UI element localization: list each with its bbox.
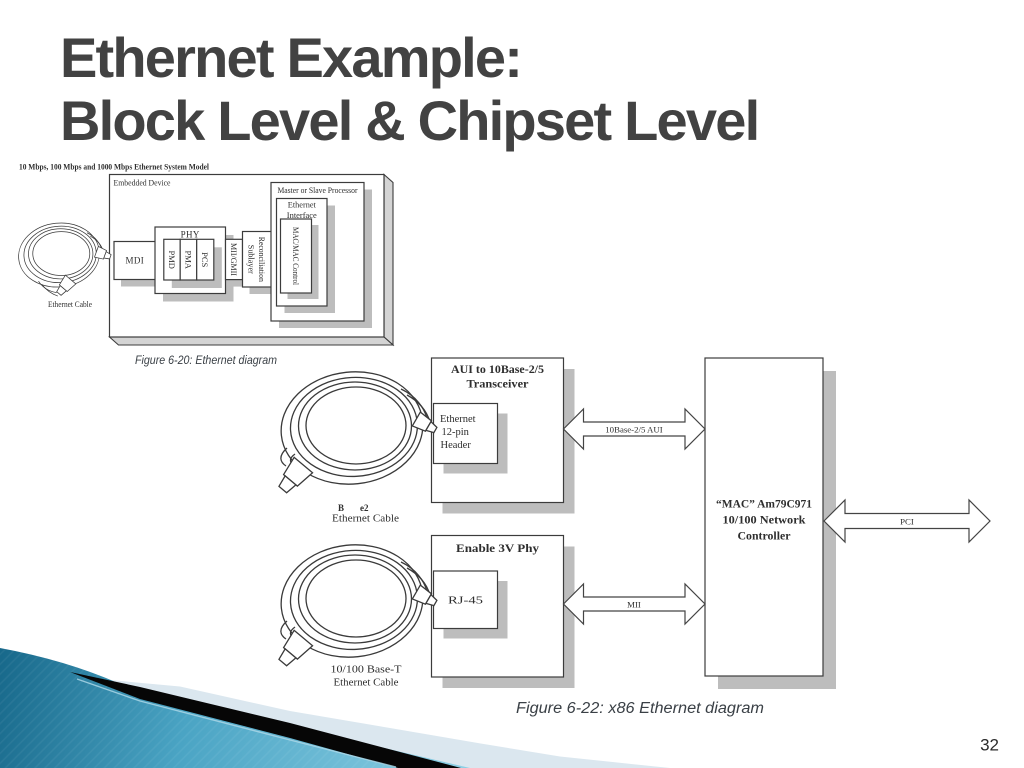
- svg-text:MAC/MAC Control: MAC/MAC Control: [291, 227, 300, 286]
- svg-text:Figure 6-20: Ethernet diagram: Figure 6-20: Ethernet diagram: [135, 353, 277, 367]
- svg-text:MII: MII: [627, 600, 641, 610]
- svg-text:MDI: MDI: [125, 256, 144, 266]
- svg-text:Master or Slave Processor: Master or Slave Processor: [278, 186, 358, 195]
- svg-text:e2: e2: [360, 503, 369, 513]
- svg-text:Figure 6-22: x86 Ethernet diag: Figure 6-22: x86 Ethernet diagram: [516, 700, 764, 717]
- svg-text:10 Mbps, 100 Mbps and 1000 Mbp: 10 Mbps, 100 Mbps and 1000 Mbps Ethernet…: [19, 163, 210, 172]
- svg-text:B: B: [338, 503, 344, 513]
- svg-text:PHY: PHY: [181, 230, 200, 240]
- svg-text:Ethernet Cable: Ethernet Cable: [332, 514, 399, 525]
- svg-text:10Base-2/5 AUI: 10Base-2/5 AUI: [605, 425, 662, 435]
- svg-text:Ethernet Cable: Ethernet Cable: [48, 299, 92, 309]
- svg-text:PMD: PMD: [167, 250, 177, 268]
- svg-text:Embedded Device: Embedded Device: [114, 178, 171, 188]
- svg-text:32: 32: [980, 736, 999, 755]
- svg-text:PCS: PCS: [200, 252, 210, 267]
- svg-text:RJ-45: RJ-45: [448, 595, 484, 607]
- svg-text:Ethernet: Ethernet: [288, 200, 317, 210]
- svg-text:PCI: PCI: [900, 517, 914, 527]
- svg-text:PMA: PMA: [183, 250, 193, 269]
- svg-text:MII/GMII: MII/GMII: [229, 243, 238, 276]
- svg-text:Enable 3V Phy: Enable 3V Phy: [456, 543, 539, 555]
